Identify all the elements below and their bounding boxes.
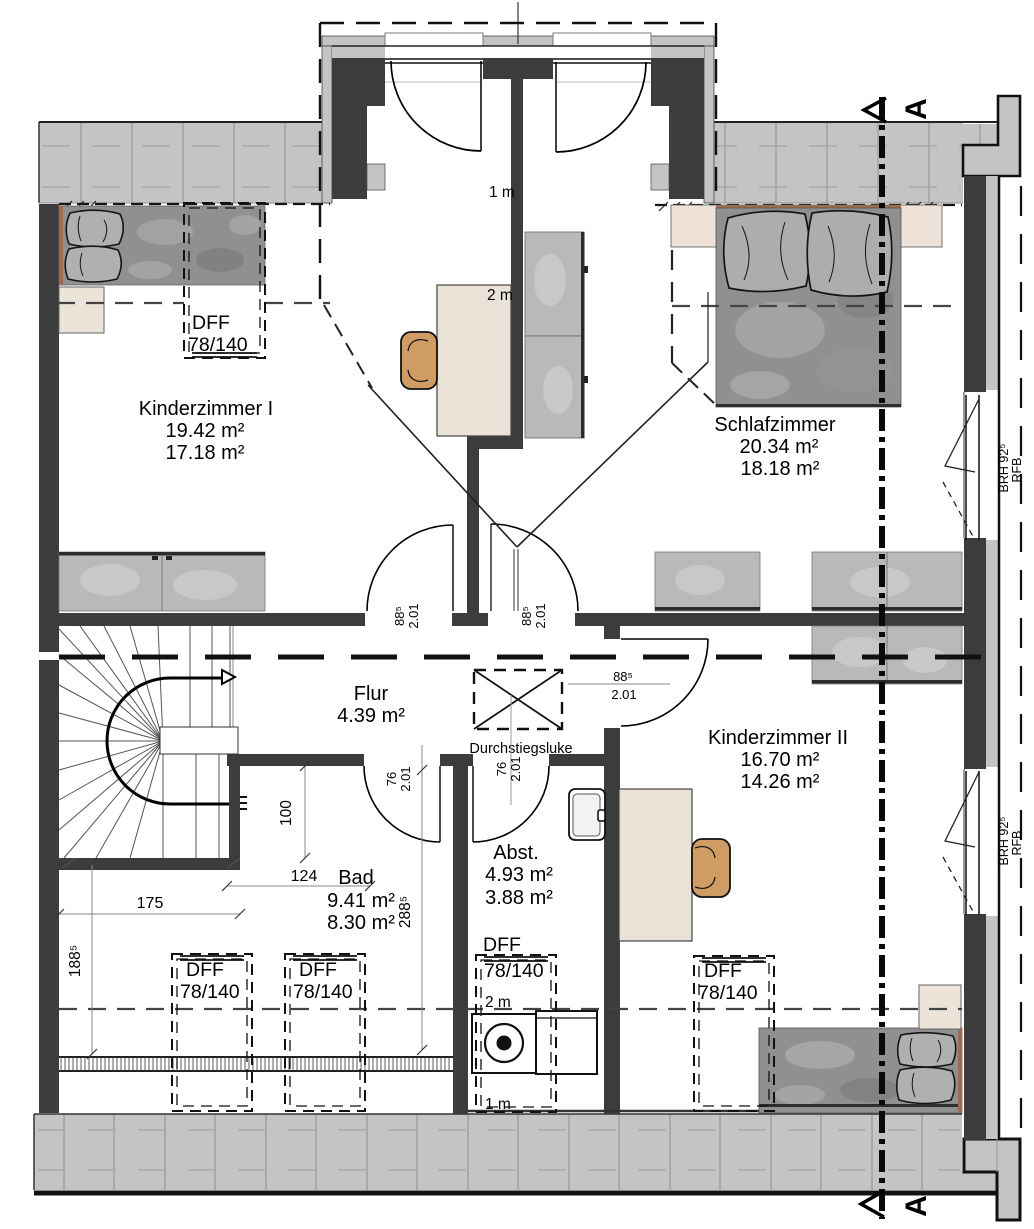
svg-text:Flur: Flur (354, 683, 389, 705)
svg-text:17.18 m²: 17.18 m² (166, 442, 245, 464)
svg-text:16.70 m²: 16.70 m² (741, 749, 820, 771)
svg-text:2.01: 2.01 (611, 687, 636, 702)
svg-text:RFB: RFB (1010, 831, 1024, 856)
svg-text:2 m: 2 m (487, 287, 513, 304)
svg-text:A: A (900, 98, 933, 120)
svg-text:Bad: Bad (338, 867, 374, 889)
svg-text:76: 76 (384, 772, 399, 786)
svg-text:Durchstiegsluke: Durchstiegsluke (469, 741, 572, 757)
svg-text:76: 76 (494, 762, 509, 776)
svg-text:78/140: 78/140 (484, 960, 544, 982)
svg-text:DFF: DFF (186, 959, 224, 981)
svg-text:124: 124 (291, 868, 318, 885)
svg-text:DFF: DFF (192, 312, 230, 334)
svg-text:9.41 m²: 9.41 m² (327, 890, 395, 912)
svg-text:RFB: RFB (1010, 458, 1024, 483)
svg-text:88⁵: 88⁵ (613, 669, 633, 684)
svg-text:DFF: DFF (483, 934, 521, 956)
svg-text:18.18 m²: 18.18 m² (741, 458, 820, 480)
svg-text:78/140: 78/140 (698, 982, 758, 1004)
svg-text:BRH 92⁵: BRH 92⁵ (997, 444, 1011, 493)
svg-text:Kinderzimmer II: Kinderzimmer II (708, 727, 848, 749)
svg-text:20.34 m²: 20.34 m² (740, 436, 819, 458)
svg-text:78/140: 78/140 (293, 981, 353, 1003)
svg-text:8.30 m²: 8.30 m² (327, 912, 395, 934)
svg-text:175: 175 (137, 895, 164, 912)
svg-text:2.01: 2.01 (406, 603, 421, 628)
svg-text:3.88 m²: 3.88 m² (485, 887, 553, 909)
svg-text:2.01: 2.01 (508, 756, 523, 781)
svg-text:4.39 m²: 4.39 m² (337, 705, 405, 727)
svg-text:78/140: 78/140 (188, 334, 248, 356)
svg-text:19.42 m²: 19.42 m² (166, 420, 245, 442)
svg-text:2 m: 2 m (485, 994, 511, 1011)
svg-text:A: A (900, 1195, 933, 1217)
svg-text:DFF: DFF (704, 960, 742, 982)
svg-text:100: 100 (278, 800, 295, 826)
svg-text:Abst.: Abst. (493, 842, 539, 864)
svg-text:14.26 m²: 14.26 m² (741, 771, 820, 793)
svg-text:88⁵: 88⁵ (392, 606, 407, 626)
svg-text:1 m: 1 m (485, 1096, 511, 1113)
svg-text:78/140: 78/140 (180, 981, 240, 1003)
svg-text:4.93 m²: 4.93 m² (485, 864, 553, 886)
svg-text:2.01: 2.01 (398, 766, 413, 791)
svg-text:1 m: 1 m (489, 184, 515, 201)
svg-text:2.01: 2.01 (533, 603, 548, 628)
svg-text:Schlafzimmer: Schlafzimmer (714, 414, 835, 436)
svg-text:BRH 92⁵: BRH 92⁵ (997, 817, 1011, 866)
svg-text:288⁵: 288⁵ (397, 896, 414, 928)
svg-text:188⁵: 188⁵ (67, 945, 84, 977)
svg-text:DFF: DFF (299, 959, 337, 981)
svg-text:Kinderzimmer I: Kinderzimmer I (139, 398, 273, 420)
svg-text:88⁵: 88⁵ (519, 606, 534, 626)
